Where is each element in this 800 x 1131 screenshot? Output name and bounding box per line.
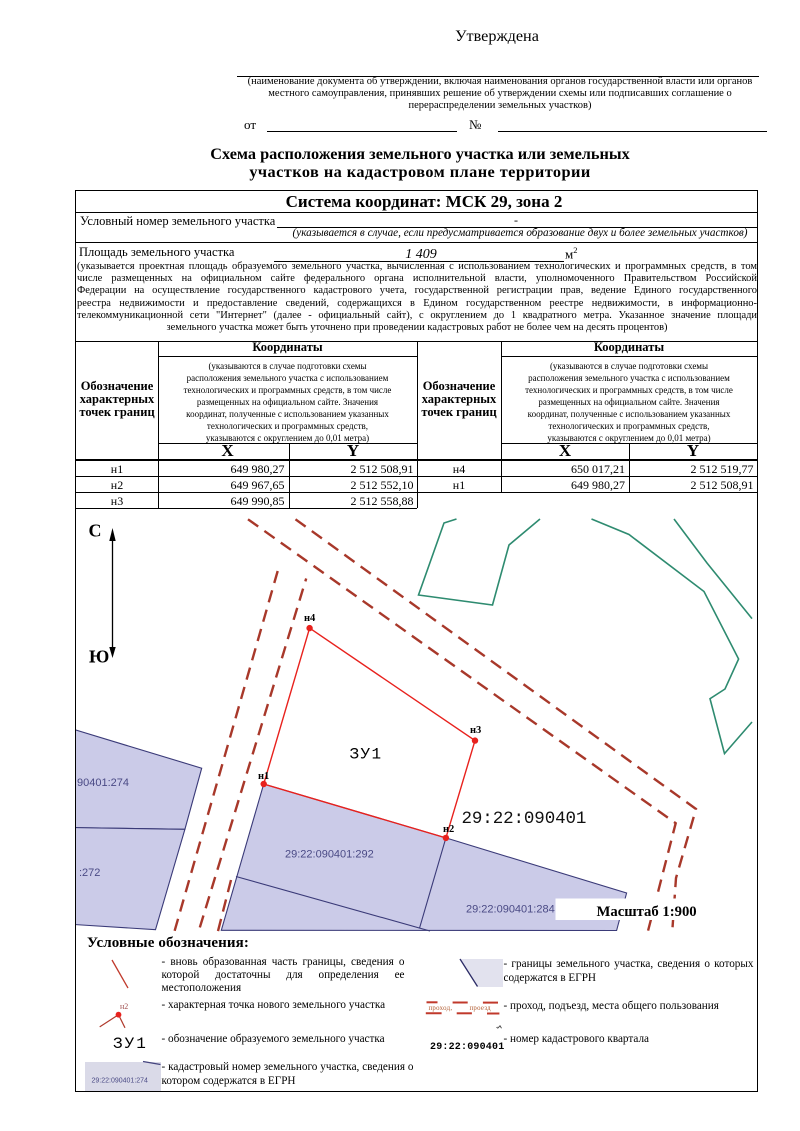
- svg-text:90401:274: 90401:274: [77, 777, 129, 789]
- svg-text:н4: н4: [304, 613, 316, 624]
- svg-text:29:22:090401:274: 29:22:090401:274: [92, 1078, 149, 1085]
- svg-text:С: С: [89, 521, 102, 541]
- svg-text:Масштаб 1:900: Масштаб 1:900: [597, 904, 697, 920]
- svg-text:29:22:090401:292: 29:22:090401:292: [285, 849, 374, 861]
- svg-text:29:22:090401: 29:22:090401: [462, 809, 587, 829]
- svg-text:Ю: Ю: [89, 647, 109, 667]
- svg-text:ЗУ1: ЗУ1: [350, 746, 383, 764]
- svg-text:29:22:090401:284: 29:22:090401:284: [466, 904, 555, 916]
- svg-text:н2: н2: [120, 1002, 128, 1011]
- svg-text:н3: н3: [470, 725, 481, 736]
- svg-text:проход,: проход,: [429, 1005, 453, 1012]
- svg-text:н2: н2: [443, 824, 454, 835]
- svg-text:проезд: проезд: [470, 1005, 492, 1012]
- svg-text:н1: н1: [258, 771, 269, 782]
- svg-text::272: :272: [79, 867, 100, 879]
